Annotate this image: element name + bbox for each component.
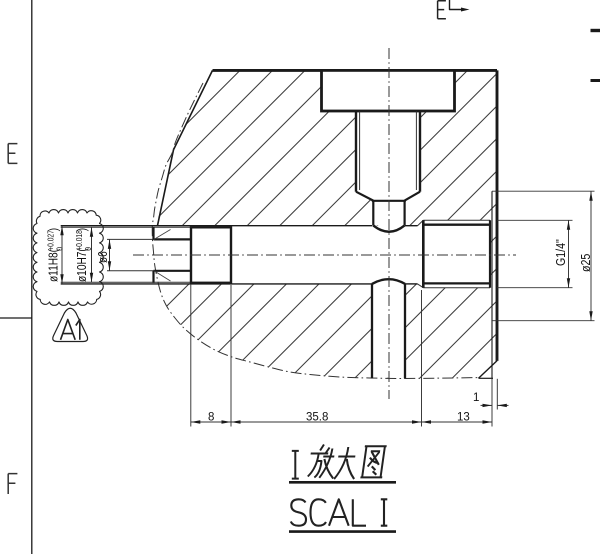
svg-text:): ) [75, 228, 89, 231]
svg-text:G1/4": G1/4" [554, 239, 568, 266]
svg-text:ø25: ø25 [579, 254, 593, 272]
svg-text:35.8: 35.8 [306, 412, 328, 424]
svg-text:ø11H8(: ø11H8( [46, 249, 60, 282]
svg-text:0: 0 [55, 247, 65, 251]
svg-text:1: 1 [473, 392, 479, 404]
svg-text:ø10H7(: ø10H7( [75, 248, 89, 282]
svg-text:8: 8 [208, 412, 214, 424]
svg-text:0: 0 [83, 247, 93, 251]
svg-text:): ) [46, 228, 60, 231]
svg-text:ø6: ø6 [97, 251, 110, 263]
svg-text:13: 13 [457, 412, 470, 424]
